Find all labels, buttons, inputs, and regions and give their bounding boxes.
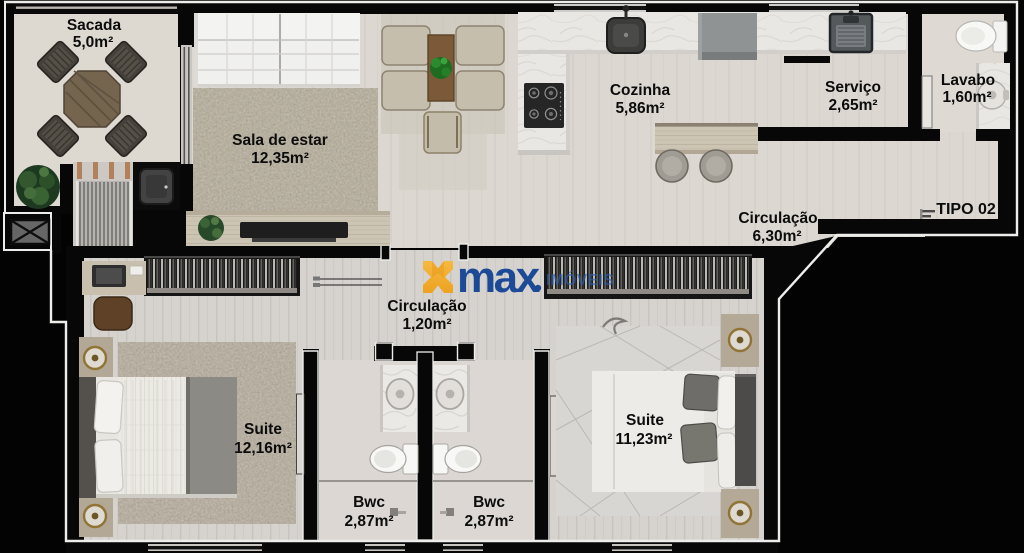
- svg-text:TIPO 02: TIPO 02: [936, 201, 996, 218]
- svg-text:5,0m²: 5,0m²: [73, 34, 114, 51]
- svg-text:Suite: Suite: [626, 412, 664, 429]
- svg-text:2,65m²: 2,65m²: [828, 97, 877, 114]
- svg-text:12,16m²: 12,16m²: [234, 440, 292, 457]
- svg-text:1,20m²: 1,20m²: [402, 316, 451, 333]
- svg-text:max: max: [457, 253, 541, 302]
- svg-text:Bwc: Bwc: [473, 494, 505, 511]
- svg-text:11,23m²: 11,23m²: [616, 431, 673, 448]
- svg-text:Lavabo: Lavabo: [941, 72, 995, 89]
- svg-text:1,60m²: 1,60m²: [942, 89, 991, 106]
- svg-text:Cozinha: Cozinha: [610, 82, 671, 99]
- svg-text:2,87m²: 2,87m²: [344, 513, 393, 530]
- svg-text:Circulação: Circulação: [738, 210, 817, 227]
- svg-text:2,87m²: 2,87m²: [464, 513, 513, 530]
- svg-text:Circulação: Circulação: [387, 298, 466, 315]
- svg-text:Sacada: Sacada: [67, 17, 122, 34]
- svg-text:6,30m²: 6,30m²: [752, 228, 801, 245]
- svg-text:Serviço: Serviço: [825, 79, 881, 96]
- svg-text:Suite: Suite: [244, 421, 282, 438]
- svg-text:5,86m²: 5,86m²: [615, 100, 664, 117]
- svg-text:Sala de estar: Sala de estar: [232, 132, 328, 149]
- svg-text:IMÓVEIS: IMÓVEIS: [546, 271, 614, 289]
- svg-text:12,35m²: 12,35m²: [251, 150, 309, 167]
- svg-text:Bwc: Bwc: [353, 494, 385, 511]
